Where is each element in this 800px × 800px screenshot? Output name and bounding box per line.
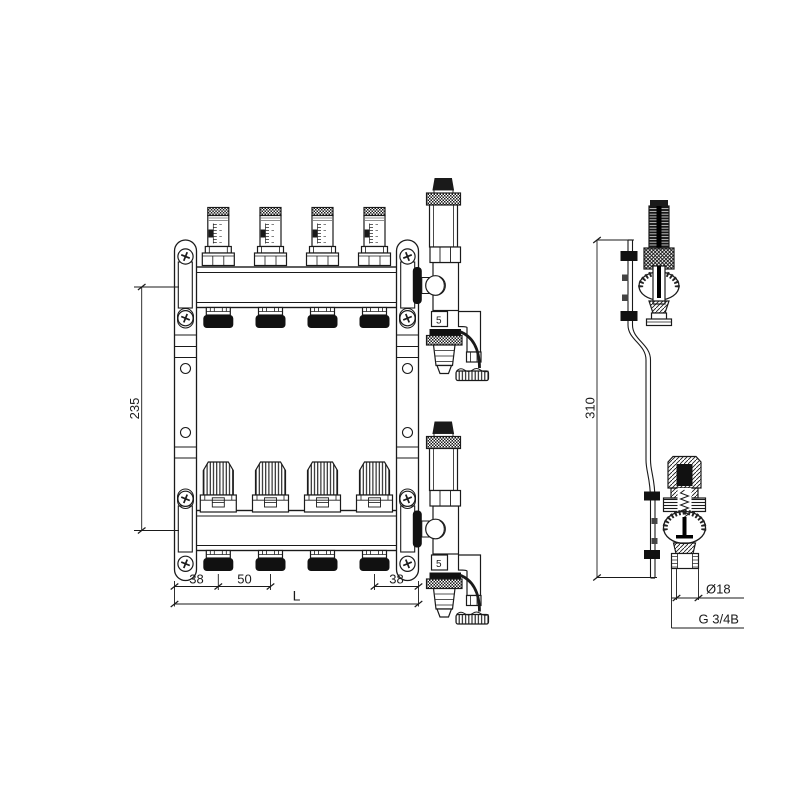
return-port-1 <box>203 551 233 572</box>
flow-meter-3 <box>307 208 339 266</box>
flow-meter-1 <box>202 208 234 266</box>
dim-label-thread: G 3/4B <box>699 612 739 627</box>
return-port-3 <box>308 551 338 572</box>
dimension-total-length: L <box>171 588 423 608</box>
end-valve-assembly-bottom <box>413 422 489 624</box>
flow-meter-4 <box>359 208 391 266</box>
supply-port-1 <box>203 308 233 329</box>
flow-meter-2 <box>255 208 287 266</box>
valve-actuator-2 <box>253 462 289 512</box>
side-view-manifold <box>621 200 706 578</box>
dimension-front-height: 235 <box>127 284 179 534</box>
dimension-pipe-diameter: Ø18 <box>672 569 745 602</box>
supply-port-2 <box>256 308 286 329</box>
end-valve-assembly-top <box>413 179 489 381</box>
valve-actuator-3 <box>305 462 341 512</box>
dim-label-38-left: 38 <box>189 572 203 587</box>
dim-label-diameter: Ø18 <box>706 582 731 597</box>
valve-actuator-1 <box>200 462 236 512</box>
valve-actuator-4 <box>357 462 393 512</box>
supply-port-4 <box>360 308 390 329</box>
return-port-2 <box>256 551 286 572</box>
technical-drawing-canvas: 5 <box>0 0 800 800</box>
supply-port-3 <box>308 308 338 329</box>
side-flow-meter-section <box>639 200 679 326</box>
side-thermostatic-valve-section <box>664 457 706 569</box>
manifold-bottom-bar <box>193 511 401 551</box>
return-port-4 <box>360 551 390 572</box>
dim-label-L: L <box>293 588 301 604</box>
dim-label-50: 50 <box>237 572 251 587</box>
dim-label-38-right: 38 <box>389 572 403 587</box>
front-view-manifold <box>175 179 489 625</box>
manifold-top-bar <box>193 267 401 308</box>
dim-label-235: 235 <box>127 398 142 420</box>
mounting-bracket-left <box>175 240 197 581</box>
dim-label-310: 310 <box>583 397 598 419</box>
